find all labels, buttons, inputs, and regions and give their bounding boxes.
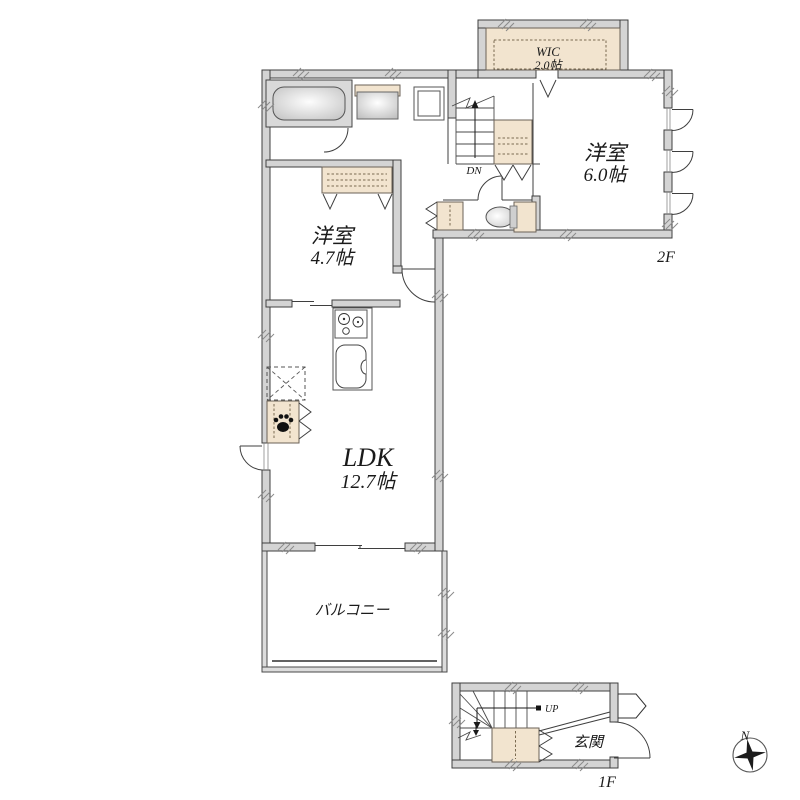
compass-north-label: N xyxy=(740,728,751,743)
bedroom47-label: 洋室 xyxy=(311,224,356,248)
bathroom-area xyxy=(266,80,448,164)
ldk-label: LDK xyxy=(342,443,395,472)
balcony-sliding-window-icon xyxy=(315,543,405,551)
floorplan-page: DN WIC 2.0帖 xyxy=(0,0,800,800)
entrance-door xyxy=(614,722,650,758)
bathroom-door-arc xyxy=(324,128,348,152)
bedroom47-sliding-door-icon xyxy=(292,302,332,306)
floor1-label: 1F xyxy=(598,774,616,791)
floorplan-drawing: DN WIC 2.0帖 xyxy=(0,0,800,800)
bedroom6-label: 洋室 xyxy=(584,141,629,165)
ldk-size-label: 12.7帖 xyxy=(341,471,399,493)
bedroom47-closet xyxy=(322,167,392,209)
floor2-label: 2F xyxy=(657,249,675,266)
wic-label: WIC xyxy=(536,44,560,59)
toilet-door-arc xyxy=(478,176,502,200)
entrance-door-swing-icon xyxy=(618,694,646,718)
entrance-label: 玄関 xyxy=(573,734,605,751)
bathtub-icon xyxy=(273,87,345,120)
balcony-label: バルコニー xyxy=(315,602,391,619)
wic-bifold-door-icon xyxy=(540,80,556,97)
wic-area: WIC 2.0帖 xyxy=(486,28,620,97)
pet-cabinet xyxy=(267,401,311,443)
stairs-down-label: DN xyxy=(465,165,482,177)
stair-break-line-1f xyxy=(458,732,481,740)
floor1-plan: UP xyxy=(452,683,650,768)
refrigerator-space-icon xyxy=(267,367,305,400)
toilet-area xyxy=(426,176,536,232)
shoe-cabinet xyxy=(492,728,552,762)
kitchen-area xyxy=(267,308,372,443)
washbasin-icon xyxy=(357,92,398,119)
bedroom47-size-label: 4.7帖 xyxy=(311,248,357,269)
stairs-down-arrow xyxy=(472,100,479,158)
stairs-up-label: UP xyxy=(545,704,558,715)
bedroom6-size-label: 6.0帖 xyxy=(584,165,630,186)
hall-closet xyxy=(494,120,532,180)
stairs-up-arrow xyxy=(474,706,542,730)
wic-size-label: 2.0帖 xyxy=(534,58,563,72)
compass-icon: N xyxy=(731,728,768,774)
ldk-door xyxy=(402,269,435,302)
